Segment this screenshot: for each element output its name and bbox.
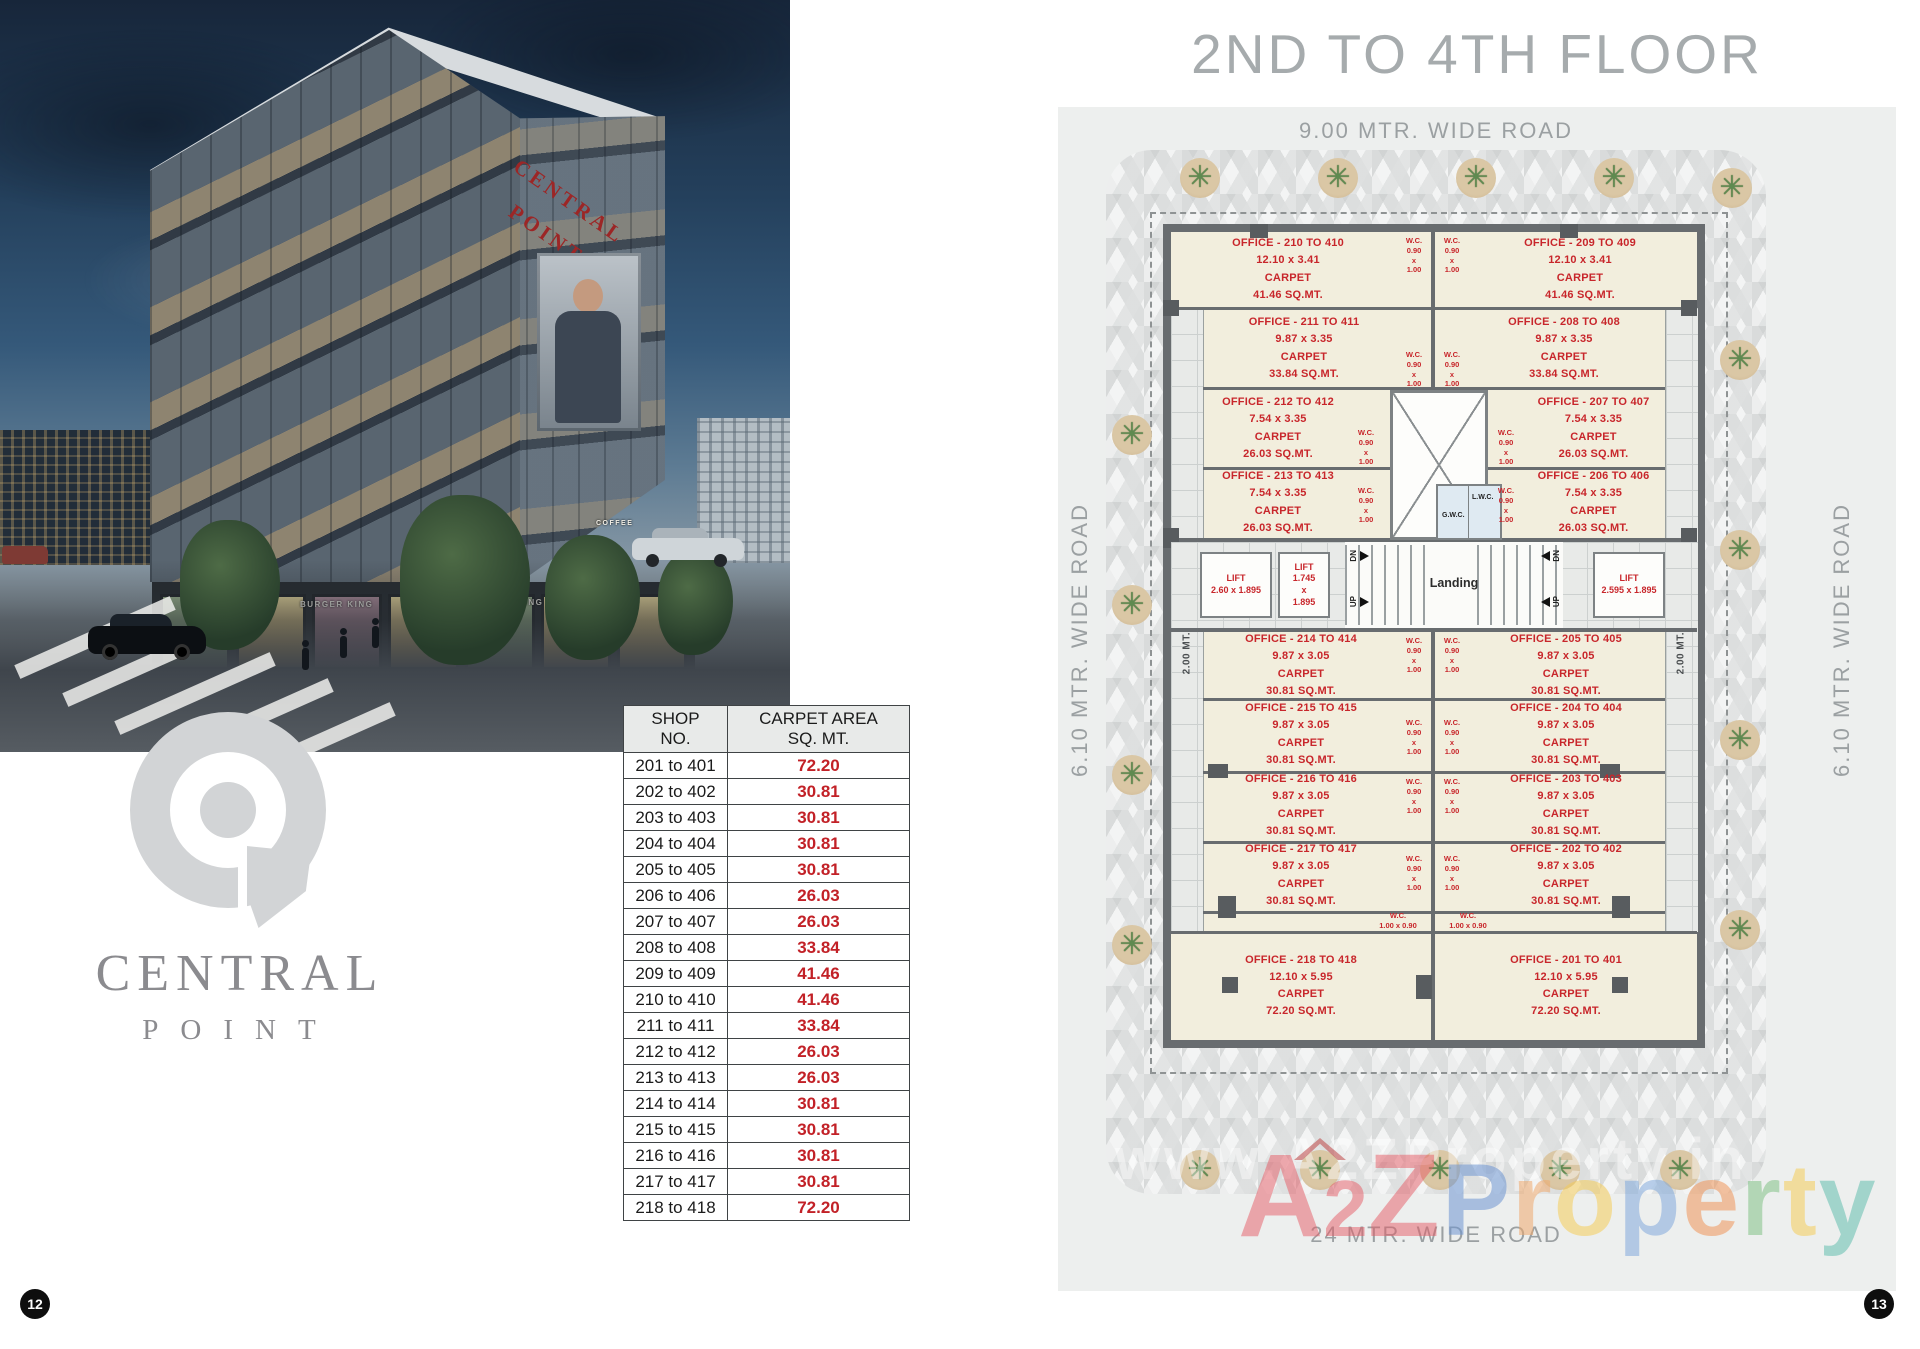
office-unit-208-408: OFFICE - 208 TO 408 9.87 x 3.35 CARPET 3… xyxy=(1463,310,1665,387)
wc-label: W.C. 0.90 x 1.00 xyxy=(1438,636,1466,675)
wc-label: W.C. 0.90 x 1.00 xyxy=(1400,718,1428,757)
watermark-letter: o xyxy=(1554,1143,1618,1257)
carpet-area-cell: 72.20 xyxy=(728,1195,910,1221)
table-row: 218 to 41872.20 xyxy=(624,1195,910,1221)
table-row: 214 to 41430.81 xyxy=(624,1091,910,1117)
palm-tree-icon xyxy=(1112,585,1152,625)
facade-banner xyxy=(537,253,641,431)
shop-no-cell: 214 to 414 xyxy=(624,1091,728,1117)
table-row: 205 to 40530.81 xyxy=(624,857,910,883)
shop-no-cell: 211 to 411 xyxy=(624,1013,728,1039)
carpet-area-cell: 30.81 xyxy=(728,857,910,883)
center-wall xyxy=(1431,232,1435,390)
logo-pin-tail xyxy=(247,846,311,928)
brochure-spread: CENTRAL POINT BURGER KING BURGER KING AR… xyxy=(0,0,1920,1349)
carpet-area-cell: 30.81 xyxy=(728,831,910,857)
table-row: 206 to 40626.03 xyxy=(624,883,910,909)
car-dark xyxy=(88,614,206,654)
palm-tree-icon xyxy=(1720,530,1760,570)
stair-direction-arrow xyxy=(1360,551,1369,561)
shop-no-cell: 213 to 413 xyxy=(624,1065,728,1091)
table-row: 212 to 41226.03 xyxy=(624,1039,910,1065)
car-red xyxy=(2,546,48,564)
carpet-area-cell: 30.81 xyxy=(728,779,910,805)
office-unit-213-413: OFFICE - 213 TO 413 7.54 x 3.35 CARPET 2… xyxy=(1203,467,1353,538)
dn-label: DN xyxy=(1349,550,1358,562)
logo-gap xyxy=(238,850,247,922)
table-row: 207 to 40726.03 xyxy=(624,909,910,935)
carpet-area-cell: 26.03 xyxy=(728,883,910,909)
shop-no-cell: 204 to 404 xyxy=(624,831,728,857)
carpet-area-cell: 33.84 xyxy=(728,935,910,961)
watermark-letter: t xyxy=(1783,1143,1819,1257)
palm-tree-icon xyxy=(1112,755,1152,795)
wc-label: W.C. 0.90 x 1.00 xyxy=(1492,486,1520,525)
lwc-label: L.W.C. xyxy=(1472,494,1493,501)
watermark-letter: p xyxy=(1618,1143,1682,1257)
wc-label: W.C. 0.90 x 1.00 xyxy=(1438,236,1466,275)
stair-direction-up: UP xyxy=(1349,596,1369,607)
wc-label: W.C. 0.90 x 1.00 xyxy=(1400,854,1428,893)
car-wheel xyxy=(102,644,118,660)
office-unit-202-402: OFFICE - 202 TO 402 9.87 x 3.05 CARPET 3… xyxy=(1467,842,1665,909)
watermark-letter: A xyxy=(1238,1130,1323,1262)
watermark-letter: e xyxy=(1682,1143,1741,1257)
shop-sign-coffee: COFFEE xyxy=(596,520,633,527)
wc-label: W.C. 0.90 x 1.00 xyxy=(1352,486,1380,525)
shop-no-cell: 205 to 405 xyxy=(624,857,728,883)
stair-direction-up: UP xyxy=(1541,596,1561,607)
office-unit-217-417: OFFICE - 217 TO 417 9.87 x 3.05 CARPET 3… xyxy=(1203,842,1399,909)
office-unit-203-403: OFFICE - 203 TO 403 9.87 x 3.05 CARPET 3… xyxy=(1467,772,1665,839)
table-row: 202 to 40230.81 xyxy=(624,779,910,805)
table-row: 203 to 40330.81 xyxy=(624,805,910,831)
table-header-row: SHOP NO. CARPET AREA SQ. MT. xyxy=(624,706,910,753)
wc-label: W.C. 0.90 x 1.00 xyxy=(1400,636,1428,675)
building-photo: CENTRAL POINT BURGER KING BURGER KING AR… xyxy=(0,0,790,752)
stair-direction-arrow xyxy=(1360,597,1369,607)
car-light xyxy=(632,528,744,562)
wc-label-horizontal: W.C. 1.00 x 0.90 xyxy=(1436,911,1500,931)
carpet-area-cell: 30.81 xyxy=(728,1091,910,1117)
shop-no-cell: 218 to 418 xyxy=(624,1195,728,1221)
watermark-a2z: A2Z xyxy=(1238,1128,1440,1264)
up-label: UP xyxy=(1349,596,1358,607)
wc-label: W.C. 0.90 x 1.00 xyxy=(1492,428,1520,467)
road-label-left: 6.10 MTR. WIDE ROAD xyxy=(1067,503,1093,777)
staircase: Landing DN UP DN UP xyxy=(1345,542,1563,628)
office-unit-201-401: OFFICE - 201 TO 401 12.10 x 5.95 CARPET … xyxy=(1435,934,1697,1038)
office-unit-209-409: OFFICE - 209 TO 409 12.10 x 3.41 CARPET … xyxy=(1463,232,1697,307)
road-label-top: 9.00 MTR. WIDE ROAD xyxy=(1106,118,1766,144)
palm-tree-icon xyxy=(1720,340,1760,380)
watermark-letter: r xyxy=(1512,1143,1554,1257)
logo-wordmark-central: CENTRAL xyxy=(40,944,440,1003)
car-wheel xyxy=(174,644,190,660)
core-divider xyxy=(1468,486,1469,538)
wc-label: W.C. 0.90 x 1.00 xyxy=(1400,777,1428,816)
watermark-letter: y xyxy=(1819,1143,1878,1257)
stair-direction-dn: DN xyxy=(1349,550,1369,562)
car-wheel xyxy=(714,554,727,567)
up-label: UP xyxy=(1552,596,1561,607)
office-unit-212-412: OFFICE - 212 TO 412 7.54 x 3.35 CARPET 2… xyxy=(1203,390,1353,467)
wc-label-horizontal: W.C. 1.00 x 0.90 xyxy=(1366,911,1430,931)
wc-label: W.C. 0.90 x 1.00 xyxy=(1438,718,1466,757)
wc-label: W.C. 0.90 x 1.00 xyxy=(1438,777,1466,816)
header-shop-no: SHOP NO. xyxy=(624,706,728,753)
logo-dot xyxy=(200,782,256,838)
page-number-right: 13 xyxy=(1864,1289,1894,1319)
shop-no-cell: 208 to 408 xyxy=(624,935,728,961)
office-unit-216-416: OFFICE - 216 TO 416 9.87 x 3.05 CARPET 3… xyxy=(1203,772,1399,839)
shop-no-cell: 206 to 406 xyxy=(624,883,728,909)
shop-no-cell: 207 to 407 xyxy=(624,909,728,935)
palm-tree-icon xyxy=(1456,158,1496,198)
central-point-logo-icon xyxy=(105,700,385,950)
lift-2: LIFT 1.745 x 1.895 xyxy=(1278,552,1330,618)
wc-label: W.C. 0.90 x 1.00 xyxy=(1400,236,1428,275)
wc-label: W.C. 0.90 x 1.00 xyxy=(1438,854,1466,893)
palm-tree-icon xyxy=(1112,415,1152,455)
watermark-property: Property xyxy=(1442,1142,1878,1259)
carpet-area-cell: 72.20 xyxy=(728,753,910,779)
stair-direction-arrow xyxy=(1541,551,1550,561)
car-wheel xyxy=(646,554,659,567)
palm-tree-icon xyxy=(1180,158,1220,198)
palm-tree-icon xyxy=(1712,168,1752,208)
table-row: 211 to 41133.84 xyxy=(624,1013,910,1039)
office-unit-210-410: OFFICE - 210 TO 410 12.10 x 3.41 CARPET … xyxy=(1171,232,1405,307)
lift-1: LIFT 2.60 x 1.895 xyxy=(1200,552,1272,618)
pedestrian xyxy=(302,648,309,670)
carpet-area-cell: 41.46 xyxy=(728,961,910,987)
landing-label: Landing xyxy=(1408,576,1500,590)
stair-direction-arrow xyxy=(1541,597,1550,607)
table-body: 201 to 40172.20202 to 40230.81203 to 403… xyxy=(624,753,910,1221)
lift-3: LIFT 2.595 x 1.895 xyxy=(1593,552,1665,618)
shop-no-cell: 210 to 410 xyxy=(624,987,728,1013)
shop-no-cell: 216 to 416 xyxy=(624,1143,728,1169)
watermark-letter: Z xyxy=(1368,1130,1440,1262)
palm-tree-icon xyxy=(1594,158,1634,198)
road-label-right: 6.10 MTR. WIDE ROAD xyxy=(1829,503,1855,777)
carpet-area-cell: 41.46 xyxy=(728,987,910,1013)
shop-no-cell: 202 to 402 xyxy=(624,779,728,805)
pedestrian xyxy=(340,636,347,658)
table-row: 215 to 41530.81 xyxy=(624,1117,910,1143)
watermark-letter: 2 xyxy=(1323,1164,1368,1253)
shop-no-cell: 212 to 412 xyxy=(624,1039,728,1065)
banner-model-torso xyxy=(555,311,621,423)
dn-label: DN xyxy=(1552,550,1561,562)
center-wall xyxy=(1431,631,1435,931)
floor-plan-title: 2ND TO 4TH FLOOR xyxy=(1058,22,1896,86)
palm-tree-icon xyxy=(1112,925,1152,965)
logo-wordmark-point: POINT xyxy=(40,1014,440,1047)
watermark-letter: r xyxy=(1741,1143,1783,1257)
background-buildings-left xyxy=(0,430,155,565)
carpet-area-cell: 33.84 xyxy=(728,1013,910,1039)
carpet-area-cell: 26.03 xyxy=(728,909,910,935)
table-row: 208 to 40833.84 xyxy=(624,935,910,961)
carpet-area-cell: 26.03 xyxy=(728,1065,910,1091)
office-unit-204-404: OFFICE - 204 TO 404 9.87 x 3.05 CARPET 3… xyxy=(1467,700,1665,769)
office-unit-214-414: OFFICE - 214 TO 414 9.87 x 3.05 CARPET 3… xyxy=(1203,633,1399,698)
carpet-area-table: SHOP NO. CARPET AREA SQ. MT. 201 to 4017… xyxy=(623,705,910,1221)
table-row: 216 to 41630.81 xyxy=(624,1143,910,1169)
gwc-label: G.W.C. xyxy=(1442,512,1465,519)
pedestrian xyxy=(372,626,379,648)
shop-no-cell: 209 to 409 xyxy=(624,961,728,987)
shop-no-cell: 201 to 401 xyxy=(624,753,728,779)
wc-label: W.C. 0.90 x 1.00 xyxy=(1352,428,1380,467)
shop-no-cell: 215 to 415 xyxy=(624,1117,728,1143)
office-unit-215-415: OFFICE - 215 TO 415 9.87 x 3.05 CARPET 3… xyxy=(1203,700,1399,769)
table-row: 204 to 40430.81 xyxy=(624,831,910,857)
watermark-letter: P xyxy=(1442,1143,1512,1257)
carpet-area-cell: 30.81 xyxy=(728,1169,910,1195)
carpet-area-cell: 30.81 xyxy=(728,805,910,831)
carpet-area-cell: 26.03 xyxy=(728,1039,910,1065)
header-carpet-area: CARPET AREA SQ. MT. xyxy=(728,706,910,753)
stair-direction-dn: DN xyxy=(1541,550,1561,562)
shop-no-cell: 217 to 417 xyxy=(624,1169,728,1195)
table-row: 201 to 40172.20 xyxy=(624,753,910,779)
table-row: 213 to 41326.03 xyxy=(624,1065,910,1091)
page-number-left: 12 xyxy=(20,1289,50,1319)
carpet-area-cell: 30.81 xyxy=(728,1117,910,1143)
shop-no-cell: 203 to 403 xyxy=(624,805,728,831)
wc-label: W.C. 0.90 x 1.00 xyxy=(1438,350,1466,389)
banner-model-head xyxy=(573,279,603,313)
office-unit-206-406: OFFICE - 206 TO 406 7.54 x 3.35 CARPET 2… xyxy=(1522,467,1665,538)
table-row: 217 to 41730.81 xyxy=(624,1169,910,1195)
table-row: 210 to 41041.46 xyxy=(624,987,910,1013)
office-unit-205-405: OFFICE - 205 TO 405 9.87 x 3.05 CARPET 3… xyxy=(1467,633,1665,698)
wc-label: W.C. 0.90 x 1.00 xyxy=(1400,350,1428,389)
carpet-area-cell: 30.81 xyxy=(728,1143,910,1169)
palm-tree-icon xyxy=(1318,158,1358,198)
office-unit-211-411: OFFICE - 211 TO 411 9.87 x 3.35 CARPET 3… xyxy=(1203,310,1405,387)
table-row: 209 to 40941.46 xyxy=(624,961,910,987)
palm-tree-icon xyxy=(1720,910,1760,950)
office-unit-207-407: OFFICE - 207 TO 407 7.54 x 3.35 CARPET 2… xyxy=(1522,390,1665,467)
palm-tree-icon xyxy=(1720,720,1760,760)
office-unit-218-418: OFFICE - 218 TO 418 12.10 x 5.95 CARPET … xyxy=(1171,934,1431,1038)
